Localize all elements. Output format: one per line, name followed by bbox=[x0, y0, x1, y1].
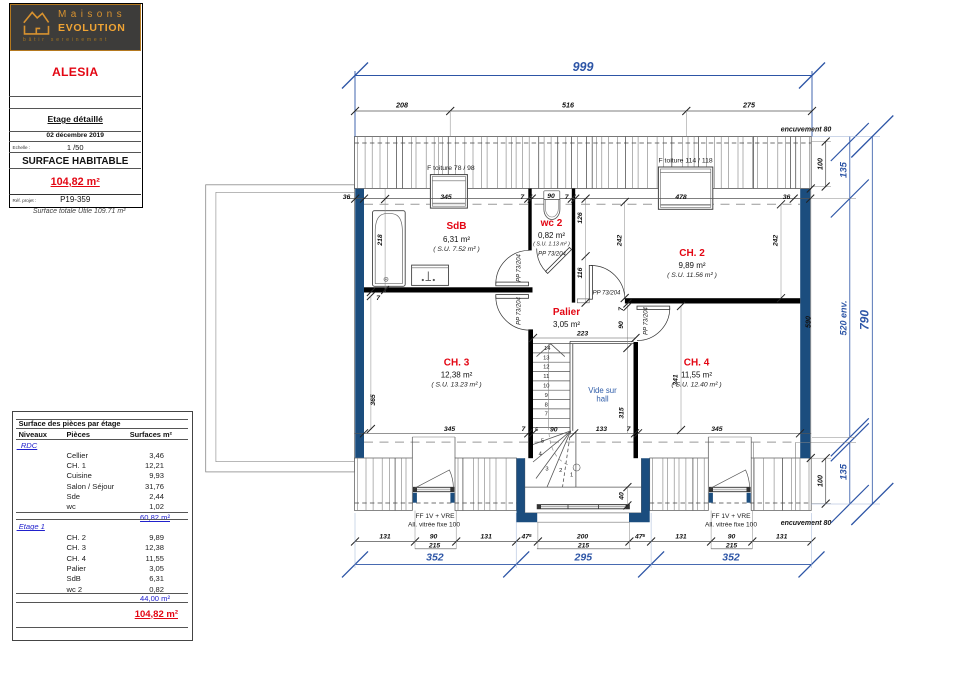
svg-text:131: 131 bbox=[675, 534, 687, 541]
svg-text:345: 345 bbox=[444, 426, 456, 433]
svg-text:352: 352 bbox=[722, 552, 740, 564]
svg-text:999: 999 bbox=[573, 60, 594, 74]
svg-text:7: 7 bbox=[627, 426, 632, 433]
svg-text:352: 352 bbox=[426, 552, 444, 564]
svg-text:131: 131 bbox=[481, 534, 493, 541]
svg-text:345: 345 bbox=[440, 194, 452, 201]
svg-text:FF 1V + VRE: FF 1V + VRE bbox=[711, 513, 751, 520]
svg-text:11: 11 bbox=[543, 374, 549, 380]
svg-text:345: 345 bbox=[711, 426, 723, 433]
svg-text:encuvement 80: encuvement 80 bbox=[781, 520, 832, 527]
svg-text:516: 516 bbox=[562, 101, 575, 110]
svg-text:5: 5 bbox=[541, 439, 544, 445]
svg-text:90: 90 bbox=[728, 534, 736, 541]
svg-text:0,82 m²: 0,82 m² bbox=[538, 231, 565, 240]
svg-text:135: 135 bbox=[839, 161, 850, 178]
svg-text:90: 90 bbox=[547, 193, 555, 200]
svg-text:215: 215 bbox=[725, 542, 738, 549]
svg-text:( S.U. 12.40 m² ): ( S.U. 12.40 m² ) bbox=[671, 382, 721, 389]
svg-text:PP 73/204: PP 73/204 bbox=[517, 296, 523, 324]
svg-text:6,31 m²: 6,31 m² bbox=[443, 235, 470, 244]
svg-text:( S.U. 7.52 m² ): ( S.U. 7.52 m² ) bbox=[433, 246, 479, 253]
svg-text:( S.U. 11.56 m² ): ( S.U. 11.56 m² ) bbox=[667, 272, 717, 279]
svg-text:116: 116 bbox=[577, 267, 584, 278]
svg-text:131: 131 bbox=[776, 534, 788, 541]
svg-text:590: 590 bbox=[804, 316, 813, 328]
svg-text:36: 36 bbox=[343, 194, 351, 201]
svg-text:2: 2 bbox=[559, 468, 562, 474]
svg-text:131: 131 bbox=[379, 534, 391, 541]
svg-text:Palier: Palier bbox=[553, 307, 580, 318]
svg-text:F toiture 114 / 118: F toiture 114 / 118 bbox=[659, 158, 713, 165]
svg-text:All. vitrée fixe 100: All. vitrée fixe 100 bbox=[705, 522, 757, 529]
svg-text:7: 7 bbox=[376, 295, 381, 302]
svg-text:478: 478 bbox=[674, 194, 687, 201]
svg-text:7: 7 bbox=[522, 426, 527, 433]
svg-text:242: 242 bbox=[616, 235, 623, 248]
svg-text:365: 365 bbox=[370, 394, 377, 406]
svg-text:FF 1V + VRE: FF 1V + VRE bbox=[415, 513, 455, 520]
svg-text:encuvement 80: encuvement 80 bbox=[781, 127, 832, 134]
svg-text:40: 40 bbox=[619, 492, 626, 501]
svg-text:13: 13 bbox=[543, 355, 549, 361]
svg-text:12,38 m²: 12,38 m² bbox=[441, 371, 473, 380]
svg-text:242: 242 bbox=[773, 235, 780, 248]
svg-text:7: 7 bbox=[520, 194, 525, 201]
svg-text:215: 215 bbox=[577, 542, 590, 549]
svg-text:315: 315 bbox=[619, 407, 626, 419]
svg-text:hall: hall bbox=[596, 395, 608, 404]
svg-text:520 env.: 520 env. bbox=[839, 300, 849, 335]
svg-text:wc 2: wc 2 bbox=[540, 218, 563, 229]
svg-text:( S.U. 13.23 m² ): ( S.U. 13.23 m² ) bbox=[431, 382, 481, 389]
svg-text:CH. 2: CH. 2 bbox=[679, 248, 705, 259]
svg-text:90: 90 bbox=[550, 427, 558, 434]
svg-text:11,55 m²: 11,55 m² bbox=[681, 371, 712, 380]
svg-text:295: 295 bbox=[574, 552, 593, 564]
svg-text:PP 73/204: PP 73/204 bbox=[644, 306, 650, 334]
svg-text:133: 133 bbox=[596, 426, 608, 433]
svg-text:12: 12 bbox=[543, 365, 549, 371]
svg-text:9: 9 bbox=[545, 393, 548, 399]
svg-text:200: 200 bbox=[576, 534, 589, 541]
svg-text:215: 215 bbox=[428, 542, 441, 549]
svg-text:100: 100 bbox=[816, 475, 825, 487]
svg-text:( S.U. 1.13 m² ): ( S.U. 1.13 m² ) bbox=[533, 242, 570, 248]
svg-text:208: 208 bbox=[395, 101, 408, 110]
svg-text:PP 73/204: PP 73/204 bbox=[517, 253, 523, 281]
svg-text:All. vitrée fixe 100: All. vitrée fixe 100 bbox=[408, 522, 460, 529]
svg-text:3,05 m²: 3,05 m² bbox=[553, 320, 580, 329]
svg-text:1: 1 bbox=[570, 473, 573, 479]
svg-text:8: 8 bbox=[545, 402, 548, 408]
svg-text:CH. 4: CH. 4 bbox=[684, 358, 710, 369]
svg-text:90: 90 bbox=[430, 534, 438, 541]
svg-text:PP 73/204: PP 73/204 bbox=[593, 291, 621, 297]
svg-text:10: 10 bbox=[543, 384, 549, 390]
svg-text:SdB: SdB bbox=[447, 221, 467, 232]
svg-text:F toiture 78 / 98: F toiture 78 / 98 bbox=[427, 165, 475, 172]
svg-text:3: 3 bbox=[545, 467, 548, 473]
svg-text:90: 90 bbox=[618, 321, 625, 329]
svg-text:218: 218 bbox=[377, 234, 384, 247]
svg-text:475: 475 bbox=[520, 533, 532, 541]
svg-text:135: 135 bbox=[839, 463, 850, 480]
svg-text:PP 73/204: PP 73/204 bbox=[538, 252, 566, 258]
svg-text:475: 475 bbox=[634, 533, 646, 541]
svg-text:100: 100 bbox=[816, 158, 825, 170]
svg-text:126: 126 bbox=[577, 212, 584, 224]
svg-text:223: 223 bbox=[576, 330, 589, 337]
svg-text:7: 7 bbox=[565, 194, 570, 201]
svg-text:7: 7 bbox=[545, 412, 548, 418]
svg-text:36: 36 bbox=[783, 194, 791, 201]
svg-text:CH. 3: CH. 3 bbox=[444, 358, 470, 369]
svg-text:14: 14 bbox=[544, 346, 551, 352]
svg-text:9,89 m²: 9,89 m² bbox=[678, 261, 705, 270]
svg-text:790: 790 bbox=[858, 310, 872, 330]
svg-text:275: 275 bbox=[742, 101, 756, 110]
